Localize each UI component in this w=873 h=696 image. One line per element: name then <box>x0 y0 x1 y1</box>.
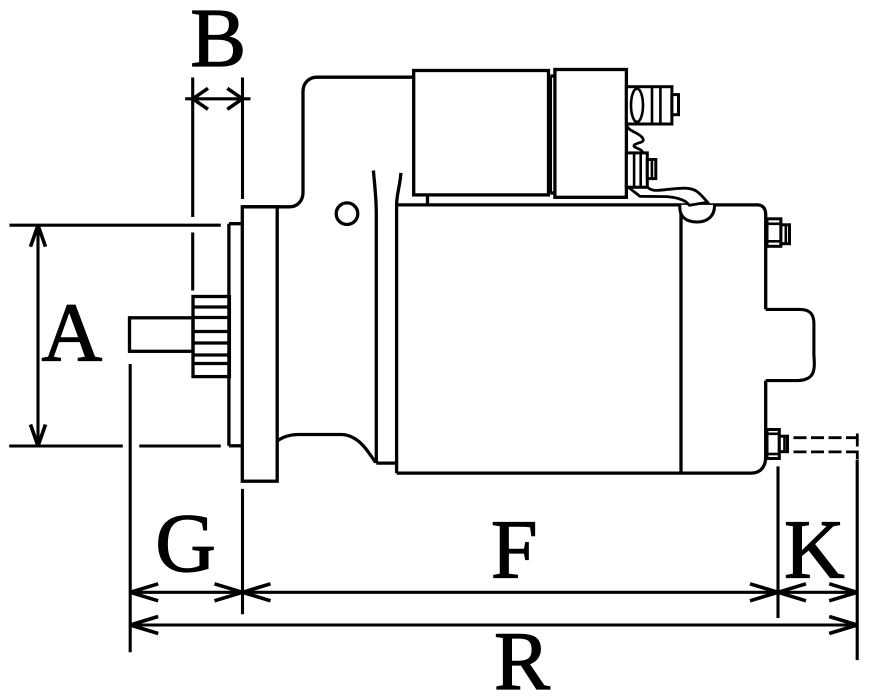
svg-text:B: B <box>190 0 246 85</box>
svg-text:R: R <box>494 615 550 696</box>
svg-text:K: K <box>784 504 845 597</box>
svg-text:F: F <box>491 503 538 596</box>
svg-text:G: G <box>155 497 216 590</box>
svg-text:A: A <box>42 287 103 380</box>
